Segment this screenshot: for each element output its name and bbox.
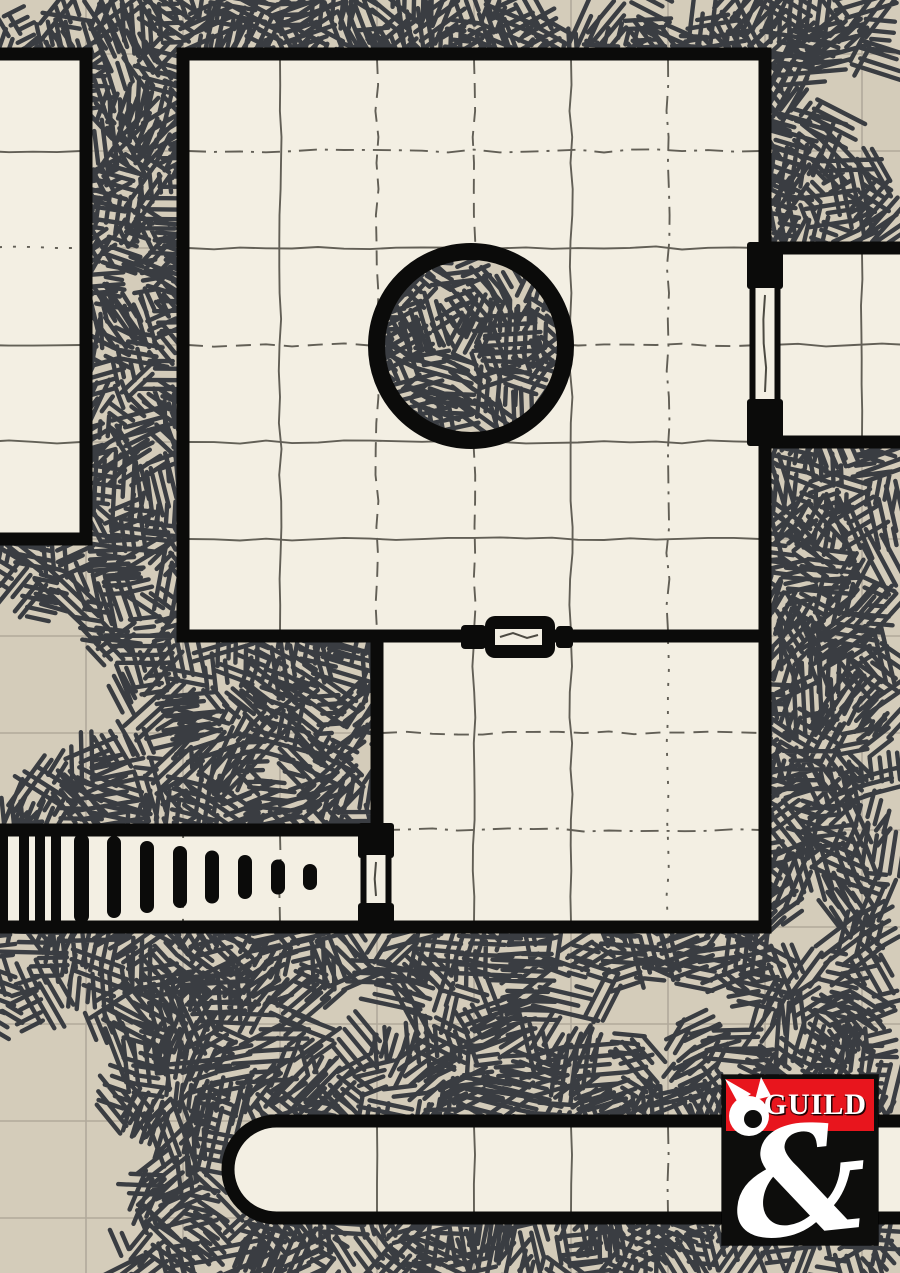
map-page: GUILD &: [0, 0, 900, 1273]
stairs-door-symbol: [358, 823, 394, 931]
floor-west-room: [0, 54, 86, 539]
dragon-ampersand-icon: &: [722, 1109, 878, 1245]
east-door-symbol: [747, 242, 783, 446]
dmsguild-logo: GUILD &: [722, 1075, 878, 1245]
